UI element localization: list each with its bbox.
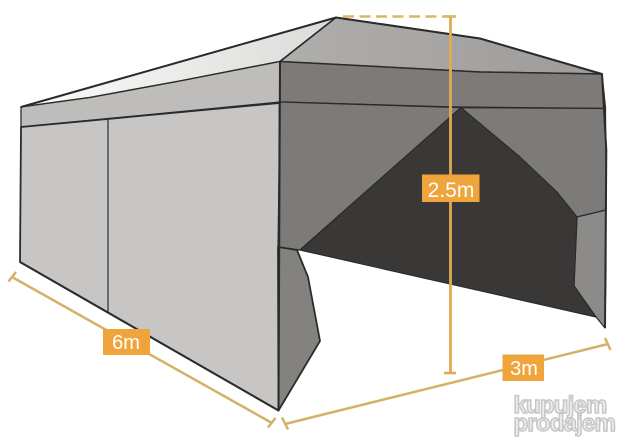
svg-text:3m: 3m <box>510 358 538 380</box>
svg-text:2.5m: 2.5m <box>428 179 475 202</box>
svg-text:6m: 6m <box>112 332 140 354</box>
